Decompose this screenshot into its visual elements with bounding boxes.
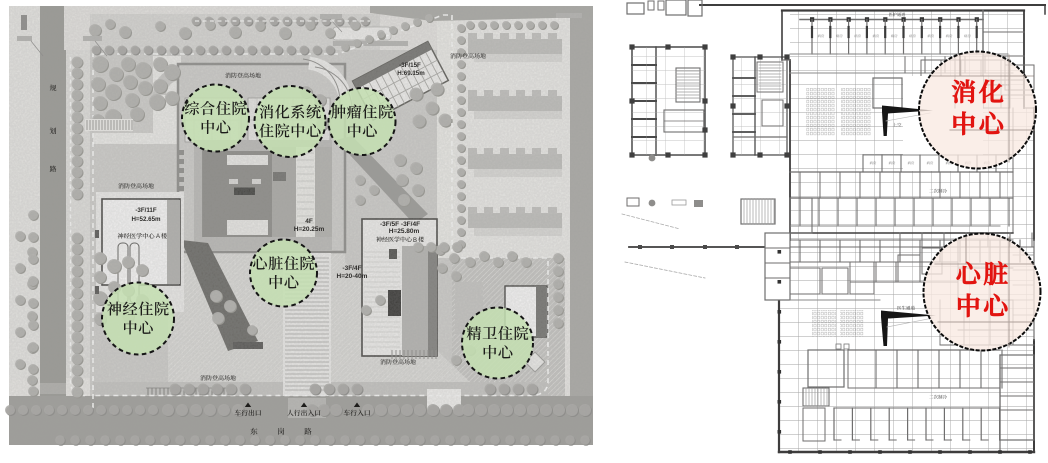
svg-text:H=25.80m: H=25.80m (389, 228, 420, 235)
svg-text:-3F/4F: -3F/4F (342, 265, 361, 272)
svg-text:-3F/15F: -3F/15F (399, 62, 421, 69)
svg-text:B: B (413, 238, 417, 244)
svg-text:H=52.65m: H=52.65m (131, 216, 161, 223)
svg-text:4F: 4F (305, 218, 313, 225)
svg-text:-3F/5F -3F/4F: -3F/5F -3F/4F (380, 221, 420, 228)
svg-text:H=20-40m: H=20-40m (337, 273, 368, 280)
svg-text:H:69.15m: H:69.15m (397, 70, 425, 77)
svg-text:-3F/11F: -3F/11F (135, 207, 157, 214)
svg-text:H=20.25m: H=20.25m (294, 226, 325, 233)
svg-text:A: A (156, 234, 160, 240)
